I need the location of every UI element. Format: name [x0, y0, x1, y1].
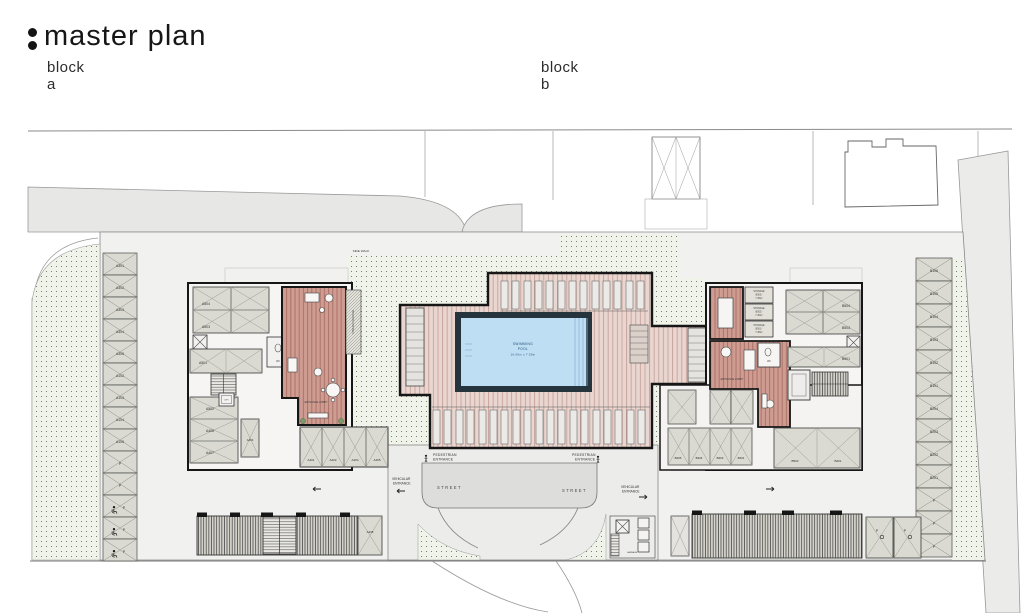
- stall-label: A407: [206, 451, 214, 455]
- pool-label-1: SWIMMING: [513, 342, 533, 346]
- wc-label: WC: [276, 361, 280, 363]
- pedestrian-entrance-right-1: PEDESTRIAN: [572, 453, 596, 457]
- garage-row-left: A408: [197, 513, 382, 556]
- elevator-b: [788, 370, 810, 400]
- neighbor-building-2: [845, 139, 938, 207]
- entrance-lobby-a-label: ENTRANCE LOBBY: [305, 401, 328, 404]
- stall-label: B204: [930, 407, 938, 411]
- block-a-label: block a: [47, 59, 85, 93]
- storage-id: B503 /: [756, 294, 763, 296]
- stall-label: B403: [717, 456, 724, 460]
- stall-label: A503: [202, 325, 210, 329]
- stall-label: B103: [930, 338, 938, 342]
- sidewalk-band: [28, 187, 467, 232]
- elevator-a: [193, 335, 207, 349]
- stall-label: B401: [738, 456, 745, 460]
- stall-label: B203: [930, 430, 938, 434]
- stall-label: B504: [842, 304, 850, 308]
- stall-label: A406: [206, 429, 214, 433]
- stall-label: A303: [116, 308, 124, 312]
- entrance-lobby-b-label: ENTRANCE LOBBY: [721, 378, 744, 381]
- stall-label: A103: [116, 396, 124, 400]
- covered-veranda-label: COVERED VERANDA: [352, 310, 355, 334]
- stall-label: A502: [206, 407, 214, 411]
- storage-label: STORAGE: [753, 307, 765, 310]
- wc-label: WC: [767, 361, 771, 363]
- storage-area: 7.36m²: [755, 331, 762, 334]
- stall-label: B105: [930, 292, 938, 296]
- stall-label: B503: [842, 326, 850, 330]
- swimming-pool: SWIMMING POOL 16.00m x 7.50m: [455, 312, 592, 392]
- stall-label: A504: [202, 302, 210, 306]
- stall-label: A403: [247, 438, 254, 442]
- sidewalk-band-end: [462, 204, 522, 232]
- pool-dimensions: 16.00m x 7.50m: [511, 353, 536, 357]
- stall-label: A304: [116, 330, 124, 334]
- pool-bench: [630, 325, 648, 363]
- stall-label: B106: [930, 269, 938, 273]
- storage-id: B501 /: [756, 328, 763, 330]
- vehicular-entrance-left-2: ENTRANCE: [393, 482, 411, 486]
- landscape-left: [32, 244, 100, 560]
- wc-b: WC: [758, 343, 780, 367]
- pedestrian-entrance-left-1: PEDESTRIAN: [433, 453, 457, 457]
- master-plan-page: { "header": { "title": "master plan", "b…: [0, 0, 1024, 613]
- vehicular-entrance-left-1: VEHICULAR: [392, 477, 411, 481]
- pedestrian-entrance-right-2: ENTRANCE: [575, 458, 596, 462]
- neighbor-building-1: [645, 137, 707, 229]
- storage-rooms: STORAGE B503 / 7.36m² STORAGE B502 / 7.3…: [745, 287, 773, 337]
- stall-label: A305: [116, 352, 124, 356]
- stall-label: A401: [307, 458, 314, 462]
- stall-label: B404: [696, 456, 703, 460]
- pool-label-2: POOL: [518, 347, 528, 351]
- site-plan-drawing: SIDE WALK STREET STREET PEDESTRIAN ENTRA…: [0, 0, 1024, 613]
- stall-label: B201: [834, 459, 841, 463]
- garbage-utility-block: GARBAGE: [610, 516, 655, 558]
- pedestrian-entrance-left-2: ENTRANCE: [433, 458, 454, 462]
- lift-a: LIFT: [219, 393, 234, 406]
- stall-label: B201: [930, 476, 938, 480]
- parking-column-left: A301 A302 A303 A304 A305 A102 A103 A104 …: [103, 253, 137, 561]
- street-label-right: STREET: [562, 488, 587, 493]
- storage-area: 7.36m²: [755, 297, 762, 300]
- stall-label: A402: [329, 458, 336, 462]
- side-walk-label: SIDE WALK: [353, 249, 371, 253]
- garage-row-right: P P: [671, 511, 921, 559]
- garbage-label: GARBAGE: [627, 551, 638, 554]
- stall-label: A301: [116, 264, 124, 268]
- stall-label: B104: [930, 315, 938, 319]
- storage-label: STORAGE: [753, 290, 765, 293]
- stall-label: B405: [675, 456, 682, 460]
- driveway-curves: [432, 561, 582, 613]
- vehicular-entrance-right-1: VEHICULAR: [621, 485, 640, 489]
- stall-label: A102: [116, 374, 124, 378]
- stall-label: A501: [199, 361, 207, 365]
- stall-label: B501: [842, 357, 850, 361]
- page-title: master plan: [44, 20, 207, 53]
- stall-label: A404: [351, 458, 358, 462]
- stall-label: B101: [930, 384, 938, 388]
- stall-label: A405: [373, 458, 380, 462]
- storage-id: B502 /: [756, 311, 763, 313]
- block-b-label: block b: [541, 59, 579, 93]
- stall-label: B202: [930, 453, 938, 457]
- stall-label: B102: [930, 361, 938, 365]
- stall-label: A408: [367, 530, 374, 534]
- brand-colon-icon: [28, 27, 38, 53]
- stall-label: B502: [791, 459, 798, 463]
- storage-area: 7.30m²: [755, 314, 762, 317]
- storage-label: STORAGE: [753, 324, 765, 327]
- stall-label: A302: [116, 286, 124, 290]
- stall-label: A105: [116, 440, 124, 444]
- street-label-left: STREET: [437, 485, 462, 490]
- vehicular-entrance-right-2: ENTRANCE: [622, 490, 640, 494]
- parking-column-right: B106 B105 B104 B103 B102 B101 B204 B203 …: [916, 258, 952, 557]
- deck-louver-left: [406, 308, 424, 386]
- stall-label: A104: [116, 418, 124, 422]
